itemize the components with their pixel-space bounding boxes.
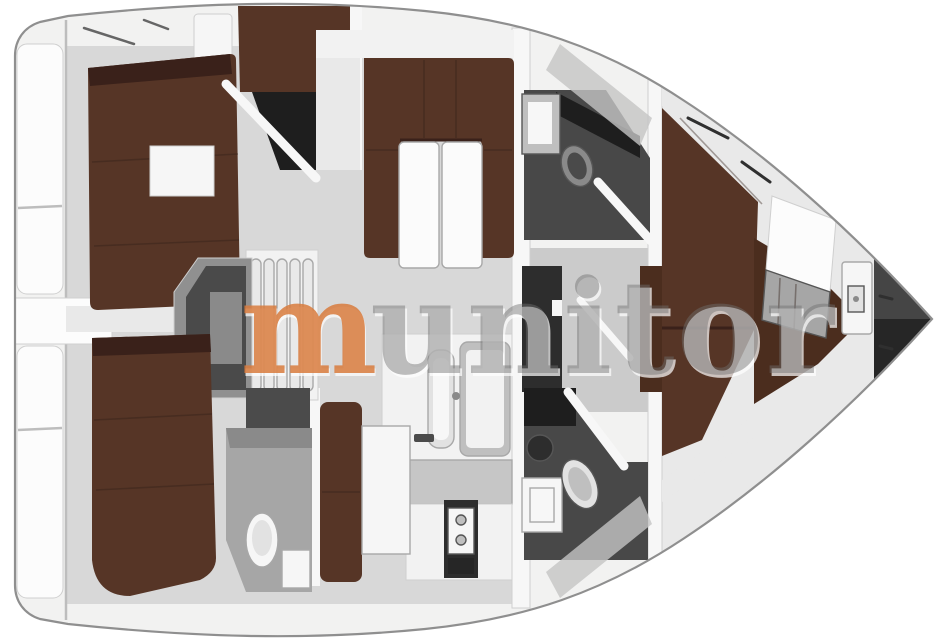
fridge-handle [414, 434, 434, 442]
salon-shelf [316, 30, 514, 58]
watermark-first-letter: m [240, 251, 380, 404]
sink [282, 550, 310, 588]
watermark: m m unitor unitor [240, 251, 838, 407]
vanity-faucet [853, 296, 859, 302]
toilet-bowl [252, 520, 272, 556]
watermark-rest: unitor [370, 251, 836, 404]
aft-starboard-cabin [92, 334, 216, 596]
burner-2 [456, 535, 466, 545]
wet-floor-shadow [226, 428, 312, 448]
centerline-wall [66, 306, 178, 332]
sink-inner [530, 488, 554, 522]
sink-basin-round [527, 435, 553, 461]
double-berth [92, 334, 216, 596]
burner-1 [456, 515, 466, 525]
stern-platform-upper [17, 44, 63, 294]
nightstand [150, 146, 214, 196]
stern-platform-lower [17, 346, 63, 598]
yacht-floorplan-image: m m unitor unitor [0, 0, 936, 641]
bow-anchor-locker-highlight [874, 254, 934, 319]
yacht-floorplan: m m unitor unitor [0, 0, 936, 641]
oven-door [448, 558, 474, 574]
chart-table [362, 426, 410, 554]
engine-core [210, 292, 242, 364]
salon-sideboard [316, 58, 360, 170]
sink-basin [528, 102, 552, 144]
salon-table-leaf-right [442, 142, 482, 268]
galley-worktop [406, 460, 512, 504]
salon-table-leaf-left [399, 142, 439, 268]
